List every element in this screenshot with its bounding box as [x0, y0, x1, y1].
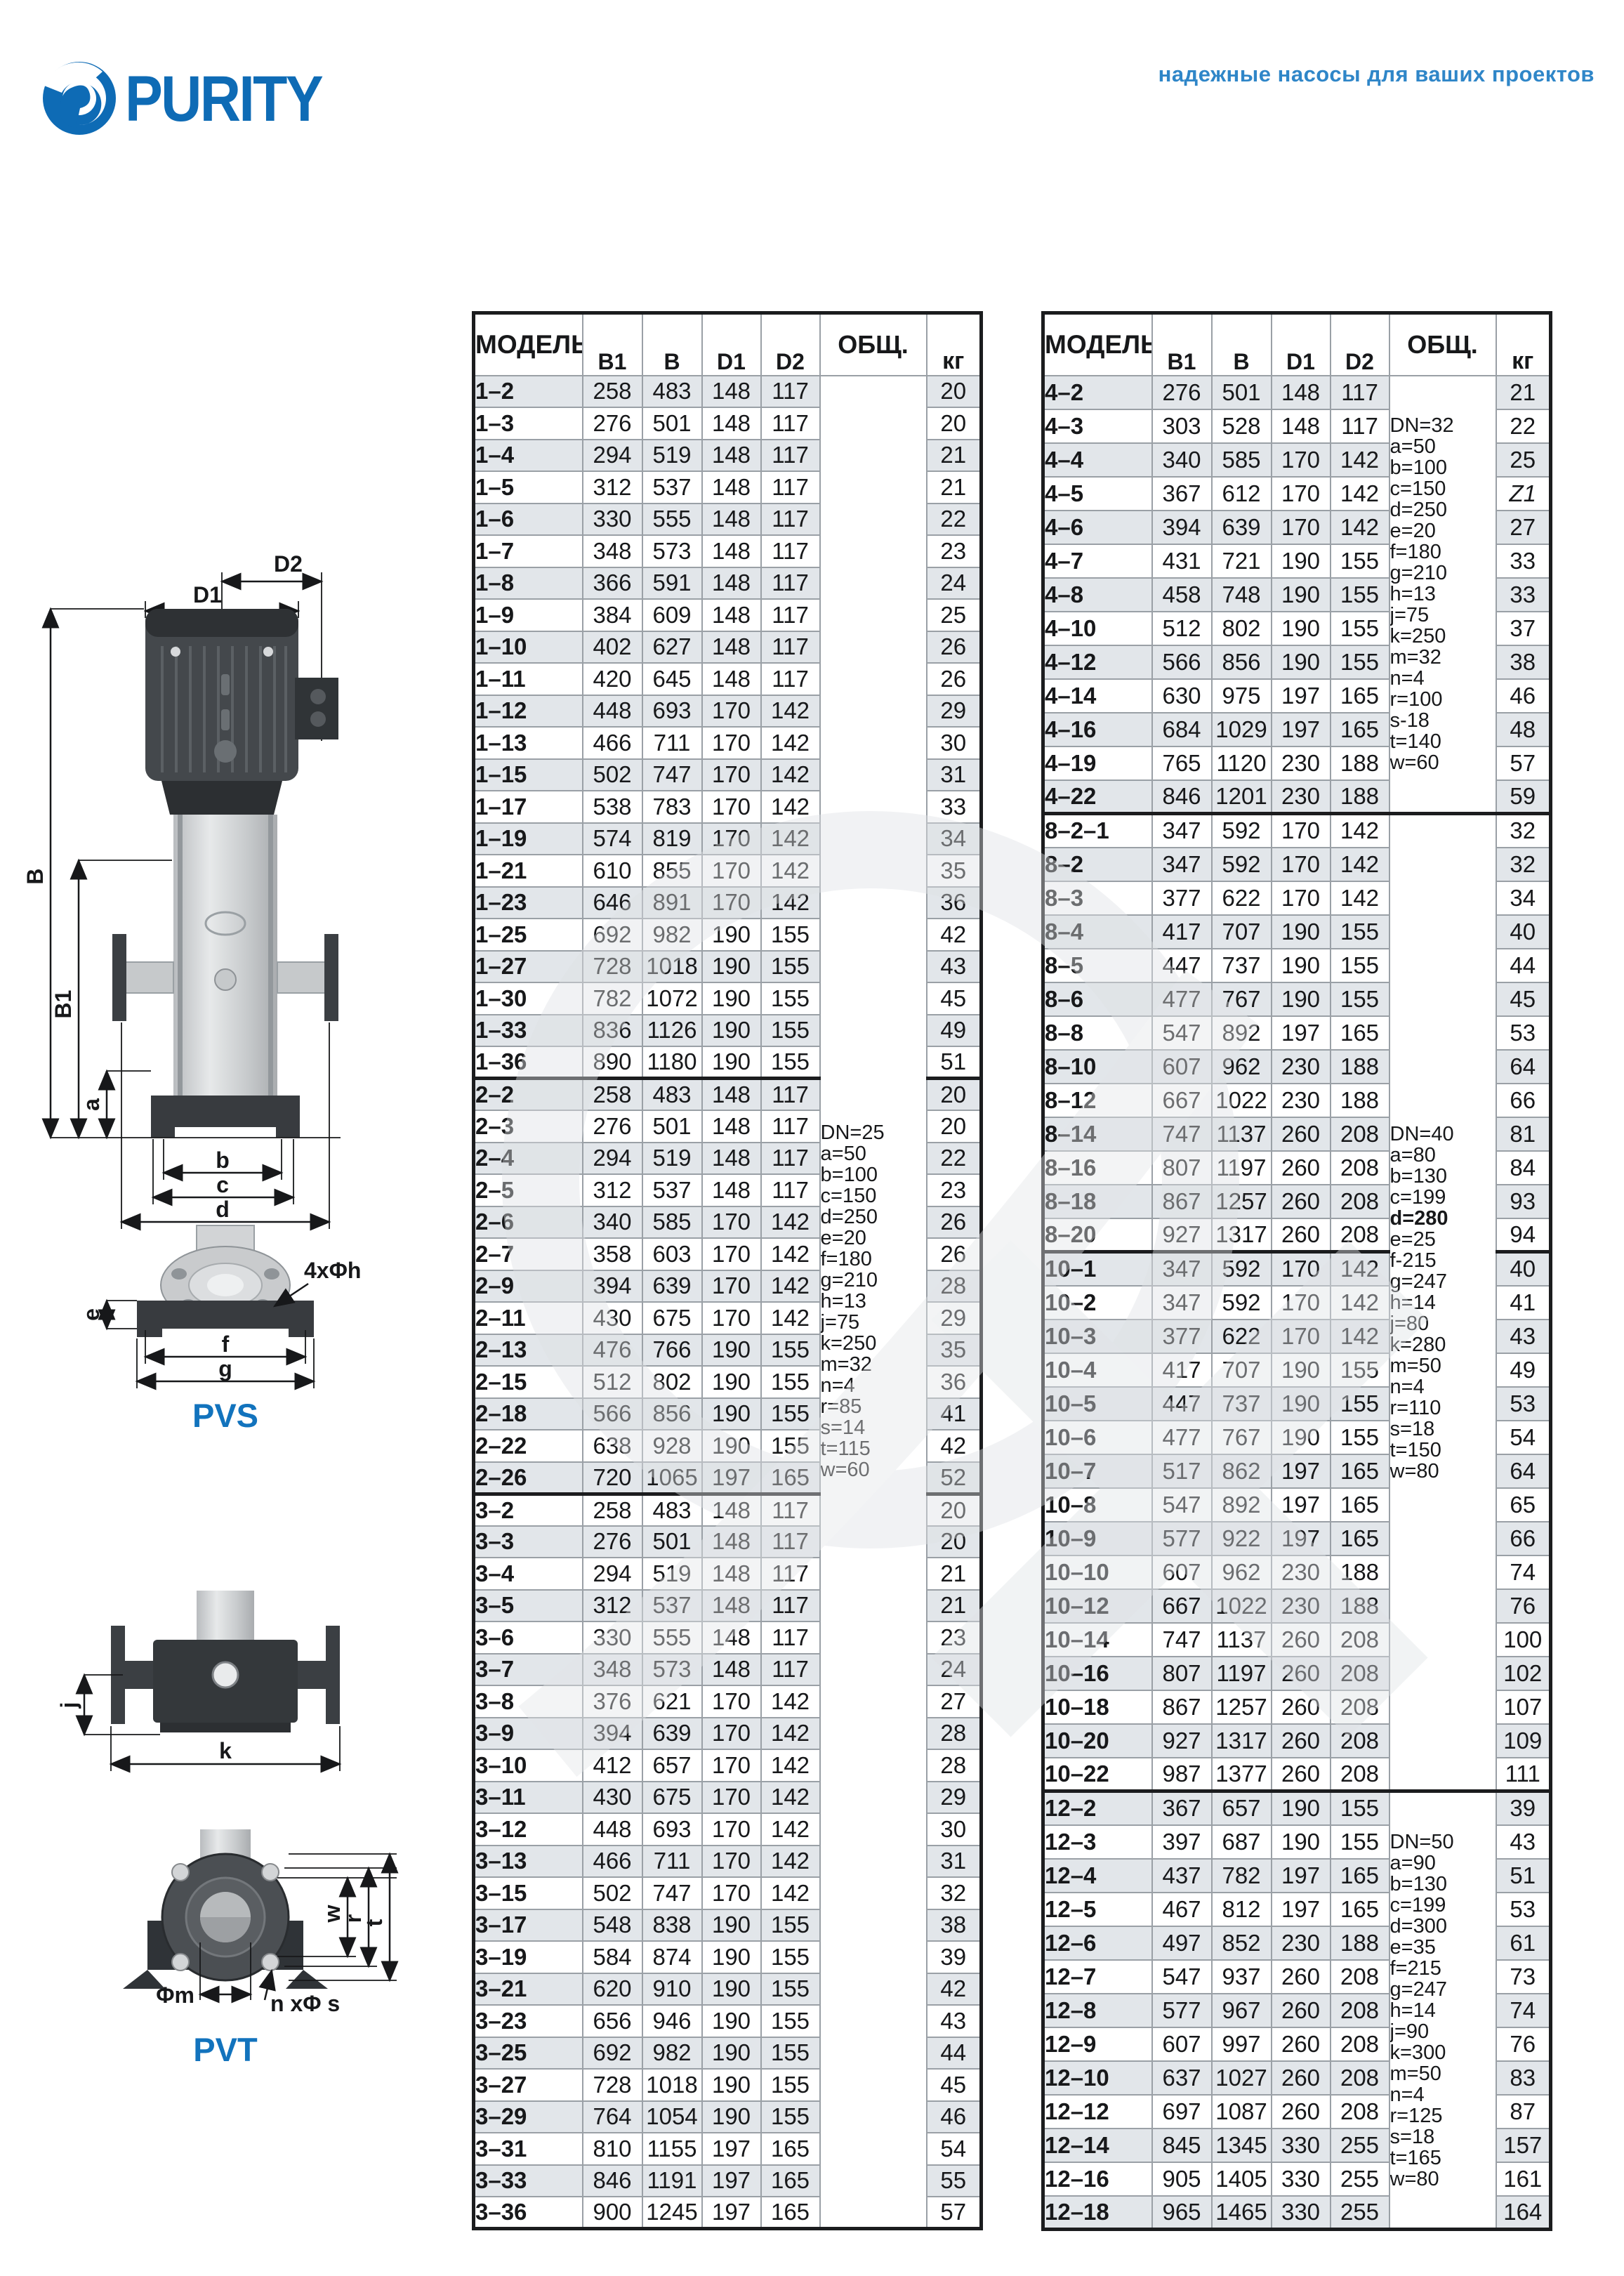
model-cell: 1–19 — [474, 823, 583, 855]
dimension-cell: 890 — [583, 1046, 642, 1079]
dimension-cell: 728 — [583, 2069, 642, 2101]
weight-cell: 20 — [927, 407, 982, 440]
model-cell: 3–33 — [474, 2165, 583, 2197]
model-cell: 12–4 — [1043, 1859, 1152, 1893]
dimension-cell: 347 — [1152, 1252, 1212, 1286]
weight-cell: 23 — [927, 1622, 982, 1654]
dimension-cell: 190 — [702, 1430, 761, 1462]
dimension-cell: 148 — [1272, 409, 1331, 443]
dimension-cell: 117 — [761, 1079, 820, 1111]
note-line: m=50 — [1390, 1355, 1496, 1376]
dimension-cell: 483 — [642, 1079, 702, 1111]
note-line: k=250 — [1390, 626, 1496, 647]
dimension-cell: 294 — [583, 440, 642, 472]
dimension-cell: 230 — [1272, 780, 1331, 814]
dimension-cell: 657 — [1212, 1791, 1272, 1825]
model-cell: 12–2 — [1043, 1791, 1152, 1825]
dimension-cell: 165 — [1331, 1454, 1389, 1488]
dimension-cell: 155 — [1331, 982, 1389, 1016]
dimension-cell: 142 — [761, 1813, 820, 1846]
dimension-cell: 260 — [1272, 1623, 1331, 1657]
dimension-cell: 142 — [761, 1846, 820, 1878]
dimension-cell: 117 — [761, 1558, 820, 1590]
weight-cell: 84 — [1496, 1151, 1551, 1185]
dimension-cell: 1201 — [1212, 780, 1272, 814]
note-line: s-18 — [1390, 710, 1496, 731]
dimension-cell: 188 — [1331, 1084, 1389, 1117]
dimension-cell: 155 — [1331, 1825, 1389, 1859]
weight-cell: 31 — [927, 759, 982, 791]
dimension-cell: 197 — [1272, 1893, 1331, 1926]
weight-cell: 164 — [1496, 2196, 1551, 2230]
dimension-cell: 276 — [583, 1110, 642, 1143]
column-header-model: МОДЕЛЬ — [474, 313, 583, 376]
dimension-cell: 394 — [583, 1718, 642, 1750]
model-cell: 2–22 — [474, 1430, 583, 1462]
model-cell: 3–25 — [474, 2037, 583, 2070]
dimension-cell: 347 — [1152, 848, 1212, 881]
dimension-cell: 188 — [1331, 780, 1389, 814]
dim-label-d1: D1 — [193, 582, 222, 607]
dimension-cell: 431 — [1152, 544, 1212, 578]
weight-cell: 44 — [1496, 949, 1551, 982]
weight-cell: 46 — [927, 2101, 982, 2133]
note-line: w=60 — [821, 1459, 926, 1480]
dimension-cell: 142 — [761, 1718, 820, 1750]
dimension-cell: 190 — [702, 1941, 761, 1973]
model-cell: 1–9 — [474, 599, 583, 631]
dimension-cell: 190 — [1272, 612, 1331, 645]
note-line: f=215 — [1390, 1958, 1496, 1979]
dimension-cell: 711 — [642, 727, 702, 759]
dimension-cell: 208 — [1331, 1151, 1389, 1185]
weight-cell: 25 — [927, 599, 982, 631]
note-line: k=250 — [821, 1333, 926, 1354]
dim-label-t: t — [362, 1919, 387, 1926]
dimension-cell: 148 — [702, 631, 761, 664]
dimension-cell: 208 — [1331, 1185, 1389, 1218]
model-cell: 3–31 — [474, 2133, 583, 2165]
model-cell: 10–20 — [1043, 1724, 1152, 1758]
dimension-cell: 142 — [761, 855, 820, 887]
column-header-obsh: ОБЩ. — [820, 313, 927, 376]
dimension-cell: 208 — [1331, 1960, 1389, 1994]
dimension-cell: 170 — [1272, 814, 1331, 848]
dimension-cell: 802 — [642, 1366, 702, 1398]
dimension-cell: 692 — [583, 919, 642, 951]
model-cell: 1–17 — [474, 791, 583, 823]
dimension-cell: 1257 — [1212, 1690, 1272, 1724]
model-cell: 8–16 — [1043, 1151, 1152, 1185]
dimension-cell: 142 — [761, 695, 820, 728]
pvt-flange-drawing: w r t Φm n xΦ s PVT — [123, 1829, 397, 2068]
model-cell: 10–14 — [1043, 1623, 1152, 1657]
dimension-cell: 867 — [1152, 1690, 1212, 1724]
dimension-cell: 188 — [1331, 1555, 1389, 1589]
weight-cell: 31 — [927, 1846, 982, 1878]
dimension-cell: 721 — [1212, 544, 1272, 578]
dimension-cell: 766 — [642, 1334, 702, 1367]
dimension-cell: 155 — [761, 2005, 820, 2037]
dimension-cell: 927 — [1152, 1724, 1212, 1758]
weight-cell: 28 — [927, 1270, 982, 1303]
dimension-cell: 720 — [583, 1462, 642, 1494]
weight-cell: 107 — [1496, 1690, 1551, 1724]
dimension-cell: 142 — [1331, 477, 1389, 511]
dimension-cell: 117 — [761, 1143, 820, 1175]
dimension-cell: 190 — [702, 2037, 761, 2070]
dimension-cell: 376 — [583, 1685, 642, 1718]
model-cell: 3–17 — [474, 1909, 583, 1942]
dim-label-phim: Φm — [156, 1982, 194, 2008]
column-header-model: МОДЕЛЬ — [1043, 313, 1152, 376]
dimension-cell: 502 — [583, 759, 642, 791]
dimension-cell: 142 — [1331, 511, 1389, 544]
dimension-cell: 230 — [1272, 746, 1331, 780]
weight-cell: 20 — [927, 376, 982, 408]
dimension-cell: 367 — [1152, 477, 1212, 511]
dimension-cell: 638 — [583, 1430, 642, 1462]
dimension-cell: 165 — [1331, 713, 1389, 746]
model-cell: 10–2 — [1043, 1286, 1152, 1320]
weight-cell: 109 — [1496, 1724, 1551, 1758]
common-dimensions-notes: DN=50a=90b=130c=199d=300e=35f=215g=247h=… — [1389, 1791, 1496, 2230]
dimension-cell: 483 — [642, 1494, 702, 1526]
model-cell: 2–11 — [474, 1302, 583, 1334]
note-line: m=32 — [821, 1354, 926, 1375]
dimension-cell: 412 — [583, 1749, 642, 1782]
table-row: 4–2276501148117DN=32a=50b=100c=150d=250e… — [1043, 376, 1551, 409]
dimension-cell: 155 — [761, 1015, 820, 1047]
model-cell: 10–9 — [1043, 1522, 1152, 1555]
dimension-cell: 807 — [1152, 1657, 1212, 1690]
dimension-cell: 330 — [1272, 2196, 1331, 2230]
weight-cell: 64 — [1496, 1454, 1551, 1488]
dimension-cell: 142 — [761, 1206, 820, 1239]
dimension-cell: 697 — [1152, 2095, 1212, 2129]
dimension-cell: 922 — [1212, 1522, 1272, 1555]
weight-cell: 45 — [927, 2069, 982, 2101]
dimension-cell: 574 — [583, 823, 642, 855]
tagline: надежные насосы для ваших проектов — [1158, 62, 1595, 87]
dimension-cell: 276 — [583, 1526, 642, 1558]
model-cell: 3–12 — [474, 1813, 583, 1846]
model-cell: 1–4 — [474, 440, 583, 472]
dimension-cell: 997 — [1212, 2027, 1272, 2061]
weight-cell: 83 — [1496, 2061, 1551, 2095]
dimension-cell: 170 — [702, 1718, 761, 1750]
motor-body — [145, 609, 298, 781]
logo-wordmark: PURITY — [125, 63, 322, 135]
dimension-cell: 982 — [642, 2037, 702, 2070]
dim-label-b1: B1 — [51, 990, 76, 1019]
dimension-cell: 573 — [642, 535, 702, 567]
dimension-cell: 142 — [761, 759, 820, 791]
dimension-cell: 117 — [761, 1110, 820, 1143]
dimension-cell: 466 — [583, 1846, 642, 1878]
weight-cell: 66 — [1496, 1084, 1551, 1117]
dimension-cell: 276 — [583, 407, 642, 440]
dimension-cell: 1029 — [1212, 713, 1272, 746]
dimension-cell: 117 — [761, 1526, 820, 1558]
dimension-cell: 197 — [702, 1462, 761, 1494]
weight-cell: 23 — [927, 535, 982, 567]
dimension-cell: 765 — [1152, 746, 1212, 780]
dimension-cell: 165 — [761, 2133, 820, 2165]
dim-label-k: k — [219, 1738, 232, 1763]
dimension-cell: 208 — [1331, 2027, 1389, 2061]
dimension-cell: 148 — [702, 663, 761, 695]
dimension-cell: 190 — [702, 1015, 761, 1047]
model-cell: 8–4 — [1043, 915, 1152, 949]
weight-cell: 42 — [927, 1430, 982, 1462]
dimension-cell: 348 — [583, 1654, 642, 1686]
dimension-cell: 148 — [702, 471, 761, 504]
dimension-cell: 148 — [702, 504, 761, 536]
weight-cell: 33 — [1496, 544, 1551, 578]
dimension-cell: 693 — [642, 1813, 702, 1846]
dimension-cell: 905 — [1152, 2162, 1212, 2196]
dimension-cell: 117 — [761, 471, 820, 504]
dimension-cell: 348 — [583, 535, 642, 567]
dimension-cell: 190 — [702, 1334, 761, 1367]
dimension-cell: 377 — [1152, 1320, 1212, 1353]
dimension-cell: 155 — [761, 1046, 820, 1079]
dimension-cell: 165 — [1331, 679, 1389, 713]
dimension-cell: 483 — [642, 376, 702, 408]
weight-cell: 38 — [1496, 645, 1551, 679]
model-cell: 1–6 — [474, 504, 583, 536]
dimension-cell: 687 — [1212, 1825, 1272, 1859]
note-line: j=90 — [1390, 2021, 1496, 2042]
dimension-cell: 367 — [1152, 1791, 1212, 1825]
weight-cell: 43 — [927, 2005, 982, 2037]
dimension-cell: 155 — [1331, 544, 1389, 578]
dimension-cell: 155 — [761, 2069, 820, 2101]
dimension-cell: 612 — [1212, 477, 1272, 511]
dimension-cell: 260 — [1272, 1758, 1331, 1791]
dimension-cell: 260 — [1272, 1657, 1331, 1690]
dimension-cell: 1377 — [1212, 1758, 1272, 1791]
dimension-cell: 142 — [761, 1877, 820, 1909]
model-cell: 3–15 — [474, 1877, 583, 1909]
dim-label-e: e — [79, 1308, 104, 1321]
model-cell: 8–12 — [1043, 1084, 1152, 1117]
weight-cell: 59 — [1496, 780, 1551, 814]
model-cell: 4–22 — [1043, 780, 1152, 814]
dimension-cell: 1072 — [642, 982, 702, 1015]
dimension-cell: 620 — [583, 1973, 642, 2006]
dimension-cell: 117 — [761, 504, 820, 536]
dimension-cell: 965 — [1152, 2196, 1212, 2230]
model-cell: 10–12 — [1043, 1589, 1152, 1623]
dimension-cell: 117 — [761, 663, 820, 695]
model-cell: 2–7 — [474, 1238, 583, 1270]
dimension-cell: 208 — [1331, 1994, 1389, 2027]
table-row: 12–2367657190155DN=50a=90b=130c=199d=300… — [1043, 1791, 1551, 1825]
dimension-cell: 117 — [761, 407, 820, 440]
model-cell: 12–7 — [1043, 1960, 1152, 1994]
model-cell: 3–29 — [474, 2101, 583, 2133]
weight-cell: 52 — [927, 1462, 982, 1494]
dimension-cell: 547 — [1152, 1960, 1212, 1994]
dimension-cell: 230 — [1272, 1555, 1331, 1589]
dimension-cell: 477 — [1152, 1421, 1212, 1454]
dimension-cell: 142 — [761, 1685, 820, 1718]
dimension-cell: 1018 — [642, 951, 702, 983]
dimension-cell: 170 — [1272, 1252, 1331, 1286]
dimension-cell: 330 — [1272, 2129, 1331, 2162]
common-dimensions-notes: DN=25a=50b=100c=150d=250e=20f=180g=210h=… — [820, 376, 927, 2229]
model-cell: 3–36 — [474, 2197, 583, 2229]
dimension-cell: 856 — [642, 1398, 702, 1430]
model-cell: 2–3 — [474, 1110, 583, 1143]
weight-cell: 22 — [1496, 409, 1551, 443]
dimension-cell: 584 — [583, 1941, 642, 1973]
model-cell: 10–3 — [1043, 1320, 1152, 1353]
dimension-cell: 170 — [702, 791, 761, 823]
dimension-cell: 807 — [1152, 1151, 1212, 1185]
dimension-cell: 384 — [583, 599, 642, 631]
model-cell: 2–18 — [474, 1398, 583, 1430]
note-line: j=75 — [821, 1312, 926, 1333]
dimension-cell: 165 — [1331, 1893, 1389, 1926]
note-line: j=75 — [1390, 605, 1496, 626]
dimension-cell: 190 — [702, 1909, 761, 1942]
dimension-cell: 170 — [702, 1270, 761, 1303]
dimension-cell: 1155 — [642, 2133, 702, 2165]
common-dimensions-notes: DN=40a=80b=130c=199d=280e=25f-215g=247h=… — [1389, 814, 1496, 1791]
dimension-cell: 190 — [702, 1973, 761, 2006]
model-cell: 2–9 — [474, 1270, 583, 1303]
dimension-cell: 170 — [1272, 848, 1331, 881]
dimension-cell: 675 — [642, 1782, 702, 1814]
left-table-header-row: МОДЕЛЬ B1 B D1 D2 ОБЩ. кг — [474, 313, 982, 376]
dimension-cell: 874 — [642, 1941, 702, 1973]
dimension-cell: 155 — [761, 2101, 820, 2133]
note-line: b=130 — [1390, 1874, 1496, 1895]
model-cell: 2–4 — [474, 1143, 583, 1175]
dimension-cell: 117 — [761, 1654, 820, 1686]
note-line: k=280 — [1390, 1334, 1496, 1355]
dimension-cell: 148 — [702, 599, 761, 631]
model-cell: 2–6 — [474, 1206, 583, 1239]
dimension-cell: 260 — [1272, 2095, 1331, 2129]
dimension-cell: 230 — [1272, 1084, 1331, 1117]
weight-cell: 26 — [927, 1206, 982, 1239]
dimension-cell: 260 — [1272, 1994, 1331, 2027]
dimension-cell: 190 — [702, 1046, 761, 1079]
dimension-cell: 585 — [1212, 443, 1272, 477]
note-line: r=110 — [1390, 1397, 1496, 1419]
dimension-cell: 862 — [1212, 1454, 1272, 1488]
dimension-cell: 330 — [583, 1622, 642, 1654]
note-line: m=32 — [1390, 647, 1496, 668]
model-cell: 1–30 — [474, 982, 583, 1015]
weight-cell: 57 — [1496, 746, 1551, 780]
dimension-cell: 693 — [642, 695, 702, 728]
dimension-cell: 170 — [1272, 1286, 1331, 1320]
dimension-cell: 838 — [642, 1909, 702, 1942]
model-cell: 2–5 — [474, 1174, 583, 1206]
dimension-cell: 148 — [702, 1174, 761, 1206]
dimension-cell: 537 — [642, 1174, 702, 1206]
dimension-cell: 155 — [761, 1366, 820, 1398]
dimension-cell: 1087 — [1212, 2095, 1272, 2129]
dimension-cell: 142 — [1331, 1252, 1389, 1286]
dimension-cell: 170 — [702, 1749, 761, 1782]
weight-cell: 41 — [1496, 1286, 1551, 1320]
model-cell: 3–3 — [474, 1526, 583, 1558]
weight-cell: 29 — [927, 1302, 982, 1334]
dimension-cell: 117 — [761, 567, 820, 600]
weight-cell: 32 — [1496, 814, 1551, 848]
note-line: g=210 — [821, 1270, 926, 1291]
dimension-cell: 312 — [583, 471, 642, 504]
dimension-cell: 155 — [1331, 578, 1389, 612]
dim-label-4xh: 4xΦh — [304, 1258, 361, 1283]
weight-cell: 25 — [1496, 443, 1551, 477]
dimension-cell: 208 — [1331, 2061, 1389, 2095]
dimension-cell: 501 — [1212, 376, 1272, 409]
dimension-cell: 656 — [583, 2005, 642, 2037]
model-cell: 1–3 — [474, 407, 583, 440]
dimension-cell: 197 — [702, 2165, 761, 2197]
model-cell: 1–8 — [474, 567, 583, 600]
weight-cell: 45 — [1496, 982, 1551, 1016]
dimension-cell: 767 — [1212, 1421, 1272, 1454]
weight-cell: 26 — [927, 663, 982, 695]
weight-cell: 54 — [927, 2133, 982, 2165]
weight-cell: 53 — [1496, 1387, 1551, 1421]
dimension-cell: 573 — [642, 1654, 702, 1686]
dimension-cell: 430 — [583, 1302, 642, 1334]
dimension-cell: 230 — [1272, 1589, 1331, 1623]
weight-cell: 39 — [927, 1941, 982, 1973]
dimension-cell: 155 — [761, 1334, 820, 1367]
dimension-cell: 190 — [1272, 1791, 1331, 1825]
dimension-cell: 155 — [761, 1430, 820, 1462]
pump-column — [173, 815, 277, 1096]
weight-cell: 65 — [1496, 1488, 1551, 1522]
dimension-cell: 155 — [1331, 1387, 1389, 1421]
weight-cell: 32 — [1496, 848, 1551, 881]
dimension-cell: 707 — [1212, 1353, 1272, 1387]
weight-cell: 34 — [927, 823, 982, 855]
dimension-cell: 684 — [1152, 713, 1212, 746]
weight-cell: 24 — [927, 1654, 982, 1686]
dimension-cell: 197 — [702, 2197, 761, 2229]
dimension-cell: 208 — [1331, 2095, 1389, 2129]
model-cell: 10–6 — [1043, 1421, 1152, 1454]
dimension-cell: 117 — [761, 535, 820, 567]
dimension-cell: 148 — [1272, 376, 1331, 409]
note-line: a=50 — [1390, 436, 1496, 457]
dimension-cell: 512 — [1152, 612, 1212, 645]
dimension-cell: 148 — [702, 407, 761, 440]
dimension-cell: 347 — [1152, 1286, 1212, 1320]
model-cell: 4–16 — [1043, 713, 1152, 746]
dimension-cell: 155 — [1331, 645, 1389, 679]
dimension-cell: 819 — [642, 823, 702, 855]
dimension-cell: 737 — [1212, 949, 1272, 982]
dimension-cell: 142 — [761, 727, 820, 759]
weight-cell: 26 — [927, 631, 982, 664]
weight-cell: 35 — [927, 1334, 982, 1367]
dimension-cell: 448 — [583, 1813, 642, 1846]
dim-label-j: j — [56, 1702, 81, 1709]
dimension-cell: 255 — [1331, 2196, 1389, 2230]
